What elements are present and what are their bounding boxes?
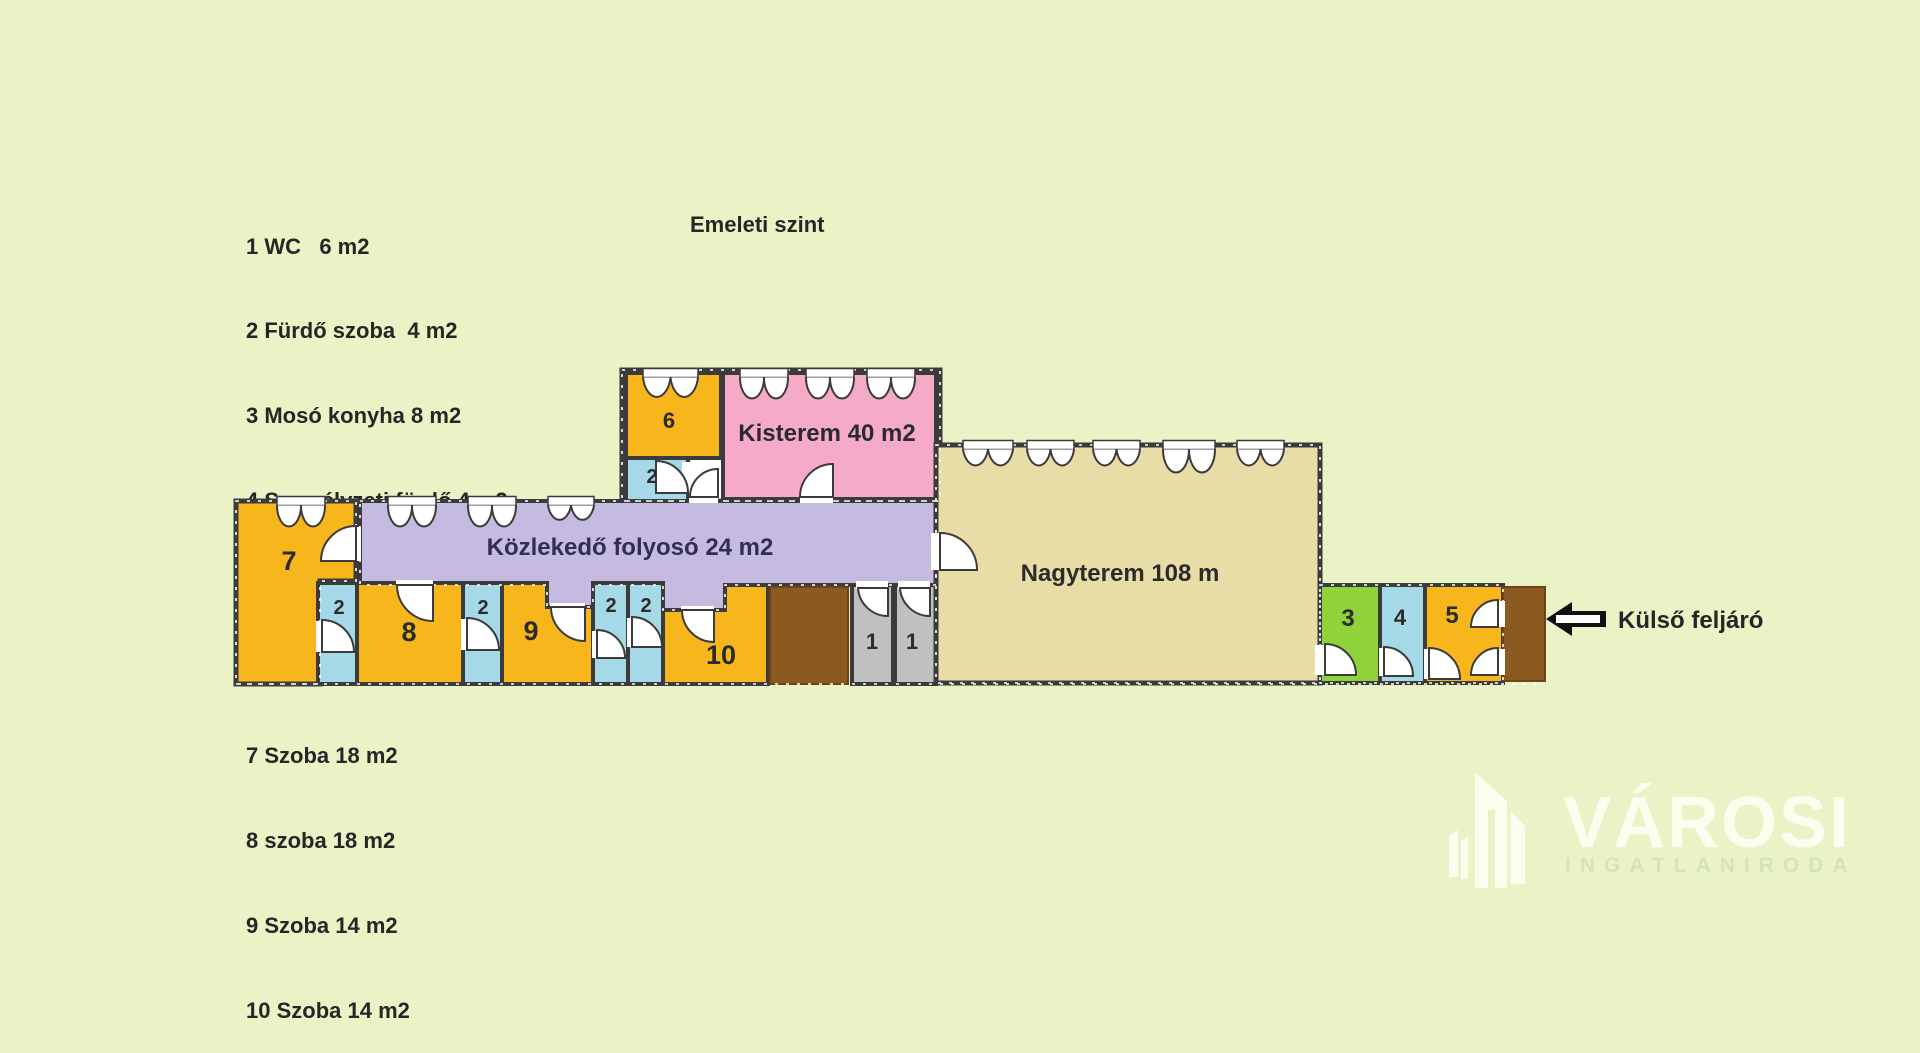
kisterem-label: Kisterem 40 m2 xyxy=(738,420,915,447)
room-2-top-label: 2 xyxy=(646,466,657,488)
room-5-label: 5 xyxy=(1445,602,1458,629)
room-2b-label: 2 xyxy=(477,597,488,619)
left-arrow-icon xyxy=(1546,602,1606,636)
logo-building-icon xyxy=(1449,772,1525,888)
staircase-right xyxy=(1503,587,1545,681)
legend-item: 10 Szoba 14 m2 xyxy=(246,997,526,1025)
room-2a-label: 2 xyxy=(333,597,344,619)
room-1b-label: 1 xyxy=(906,629,918,654)
room-6-label: 6 xyxy=(663,408,675,433)
rooms-layer xyxy=(236,370,1545,684)
room-2c-label: 2 xyxy=(605,595,616,617)
room-4-label: 4 xyxy=(1394,605,1407,630)
room-7-label: 7 xyxy=(281,546,296,576)
room-10-label: 10 xyxy=(706,640,736,670)
nagyterem-label: Nagyterem 108 m xyxy=(1021,560,1220,587)
room-9-label: 9 xyxy=(523,616,538,646)
staircase-left xyxy=(770,587,848,684)
logo-name: VÁROSI xyxy=(1563,787,1851,859)
corridor-label: Közlekedő folyosó 24 m2 xyxy=(487,534,774,561)
logo-subtitle: INGATLANIRODA xyxy=(1565,855,1857,876)
room-8-label: 8 xyxy=(401,617,416,647)
room-1a-label: 1 xyxy=(866,629,878,654)
page: { "title": "Emeleti szint", "legend": [ … xyxy=(0,0,1920,931)
room-2d-label: 2 xyxy=(640,595,651,617)
room-3-label: 3 xyxy=(1341,605,1354,632)
